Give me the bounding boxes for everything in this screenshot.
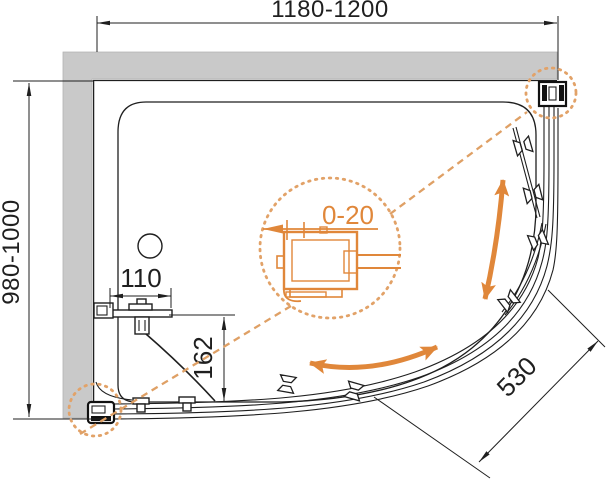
dim-adjustment-label: 0-20	[322, 200, 374, 230]
dim-width-label: 1180-1200	[271, 0, 389, 23]
dim-110-label: 110	[120, 263, 161, 293]
bracket-lower-block	[135, 317, 149, 334]
shower-enclosure-drawing: 1180-1200 980-1000 110 162 530	[0, 0, 606, 481]
dim-162-label: 162	[188, 336, 218, 379]
dim-depth-label: 980-1000	[0, 199, 25, 304]
wall-profile-top-right	[539, 82, 566, 106]
glass-clamp-2	[179, 397, 195, 411]
bracket-clamp-plate	[129, 304, 152, 310]
shower-tray	[118, 102, 536, 402]
tray-hole	[138, 234, 162, 258]
technical-drawing-canvas: 1180-1200 980-1000 110 162 530	[0, 0, 606, 481]
wall-profile-bottom-left	[88, 402, 114, 423]
dim-530-label: 530	[491, 351, 543, 403]
